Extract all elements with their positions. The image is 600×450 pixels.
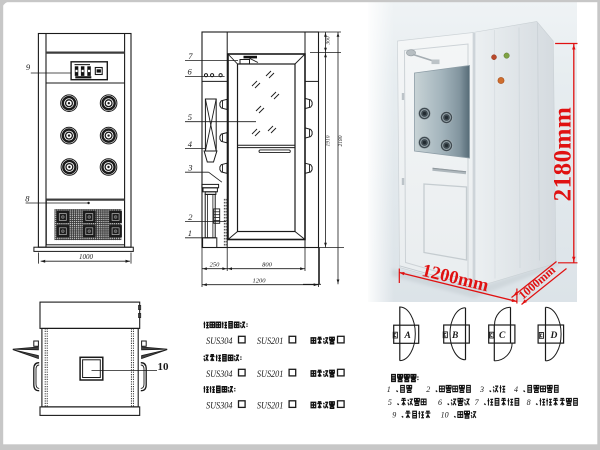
svg-text:1910: 1910 — [326, 135, 332, 146]
svg-text:5: 5 — [188, 112, 192, 122]
svg-text:1000: 1000 — [79, 253, 94, 261]
svg-text:C: C — [499, 331, 506, 341]
svg-text:6: 6 — [438, 398, 442, 407]
svg-text:1: 1 — [188, 228, 192, 238]
svg-text:300: 300 — [326, 36, 332, 46]
svg-text:2180mm: 2180mm — [550, 107, 577, 202]
svg-text:4: 4 — [514, 385, 518, 394]
svg-text:SUS201: SUS201 — [257, 370, 284, 380]
svg-text:5: 5 — [388, 398, 392, 407]
svg-text:3: 3 — [479, 385, 484, 394]
svg-text:8: 8 — [527, 398, 531, 407]
svg-text:2: 2 — [426, 385, 430, 394]
svg-text:2: 2 — [188, 212, 193, 222]
svg-text:3: 3 — [187, 162, 192, 172]
svg-text:10: 10 — [441, 411, 449, 420]
svg-text:4: 4 — [188, 139, 193, 149]
svg-text:A: A — [404, 331, 411, 341]
svg-text:250: 250 — [210, 262, 221, 269]
svg-text:9: 9 — [26, 62, 31, 72]
svg-text:SUS201: SUS201 — [257, 402, 284, 412]
svg-text:1200: 1200 — [253, 278, 267, 285]
svg-text:D: D — [550, 331, 558, 341]
svg-text:SUS304: SUS304 — [206, 402, 233, 412]
svg-text:8: 8 — [25, 194, 30, 204]
svg-text:7: 7 — [188, 51, 193, 61]
svg-text:1: 1 — [387, 385, 391, 394]
svg-text:9: 9 — [392, 411, 396, 420]
svg-text:SUS304: SUS304 — [206, 370, 233, 380]
svg-text:2180: 2180 — [338, 135, 344, 146]
svg-text:B: B — [451, 331, 458, 341]
svg-text:800: 800 — [262, 262, 273, 269]
svg-text:10: 10 — [158, 361, 170, 373]
svg-text:SUS201: SUS201 — [257, 337, 284, 347]
svg-text:SUS304: SUS304 — [206, 337, 233, 347]
